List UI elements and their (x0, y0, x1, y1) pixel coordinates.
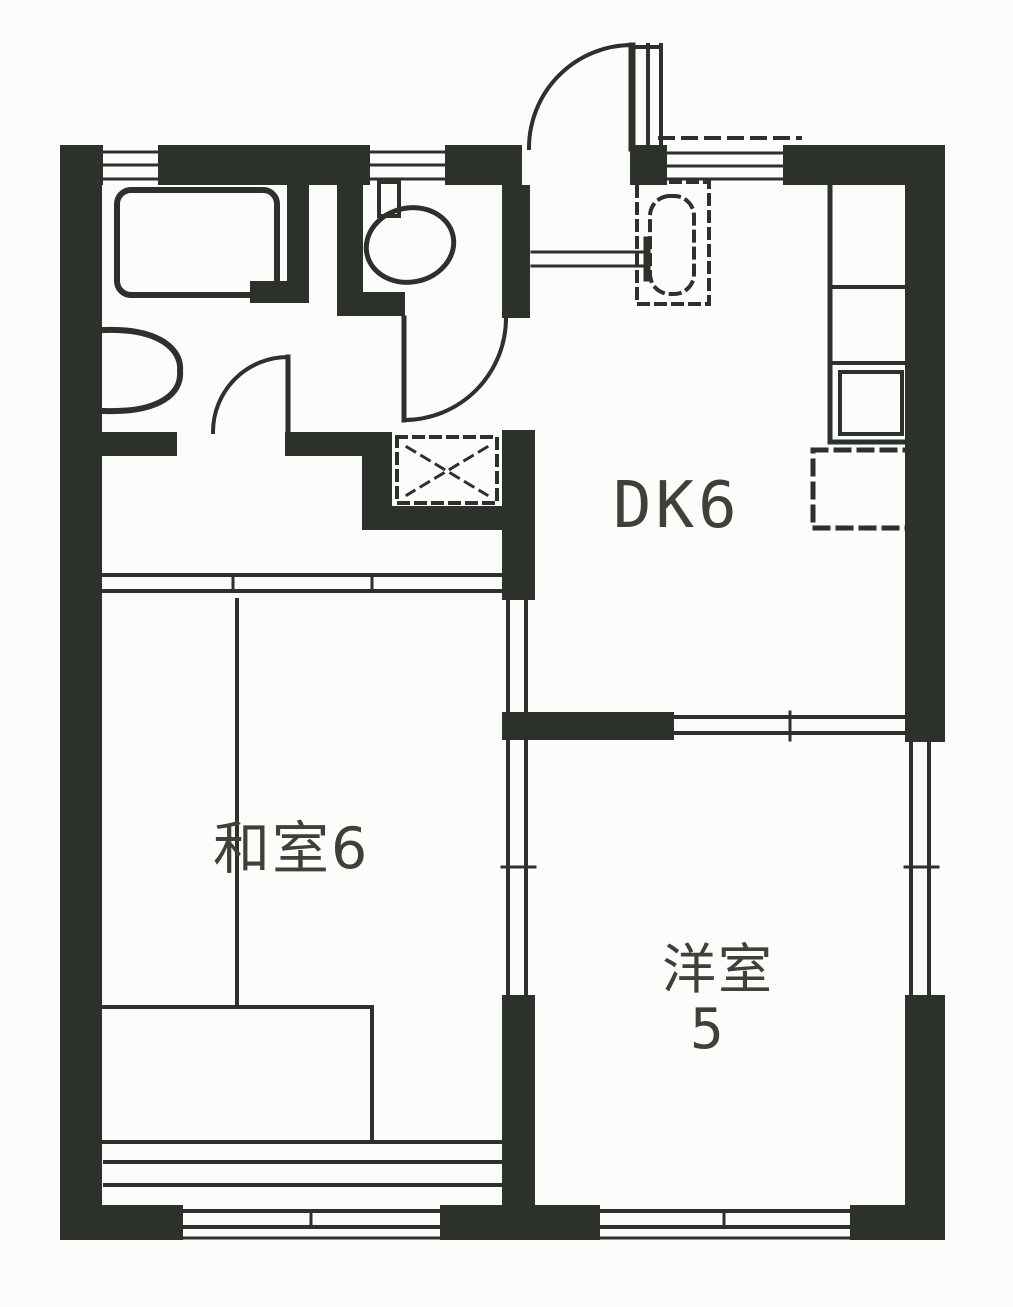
tatami-lines (103, 600, 504, 1185)
bathtub-icon (117, 190, 277, 295)
wall-washroom-bottom-left (100, 432, 177, 456)
washroom-door-icon (213, 357, 288, 432)
western-room-right-window-icon (905, 742, 938, 995)
japanese-western-sliding-door-icon (502, 742, 535, 995)
toilet-window-icon (370, 152, 445, 179)
wall-bottom-seg2 (440, 1205, 600, 1240)
room-label-western-room-size: 5 (690, 997, 724, 1062)
bath-window-icon (103, 152, 158, 179)
wall-niche-bottom (392, 506, 504, 530)
dk-western-sliding-door-icon (674, 712, 905, 740)
entrance-step-icon (532, 240, 648, 278)
entrance-side-window-icon (660, 138, 800, 179)
washing-machine-space-icon (397, 437, 497, 503)
room-labels: DK6 和室6 洋室 5 (213, 469, 774, 1062)
floor-plan: DK6 和室6 洋室 5 (0, 0, 1013, 1307)
wall-toilet-dk (502, 185, 530, 318)
dk-japanese-sliding-door-icon (508, 600, 526, 712)
wall-bottom-seg3 (850, 1205, 945, 1240)
wall-top-seg1 (60, 145, 103, 185)
wall-right-seg2 (905, 995, 945, 1240)
wall-top-seg3 (445, 145, 522, 185)
toilet-door-icon (404, 318, 506, 420)
wall-washroom-bottom-right (285, 432, 364, 456)
wall-niche-left (362, 432, 392, 530)
wall-top-seg2 (158, 145, 370, 185)
washbasin-icon (104, 330, 180, 411)
hall-fusuma-track-icon (103, 575, 504, 591)
room-label-dk: DK6 (613, 469, 741, 543)
wall-toilet-bottom (337, 292, 405, 316)
wall-hall-dk (502, 430, 535, 600)
room-label-western-room: 洋室 (662, 938, 774, 1001)
stove-icon (840, 372, 902, 434)
wall-interroom-lower (502, 995, 535, 1207)
wall-left (60, 145, 102, 1240)
western-room-bottom-window-icon (600, 1211, 850, 1238)
toilet-icon (359, 182, 460, 290)
japanese-room-bottom-window-icon (183, 1211, 440, 1238)
inner-walls (100, 185, 674, 1207)
entrance-door-icon (529, 45, 661, 150)
room-label-japanese-room: 和室6 (213, 816, 369, 882)
kitchen-counter-icon (830, 180, 912, 442)
wall-dk-bottom (502, 712, 674, 740)
refrigerator-space-icon (813, 450, 908, 528)
wall-bottom-seg1 (60, 1205, 183, 1240)
